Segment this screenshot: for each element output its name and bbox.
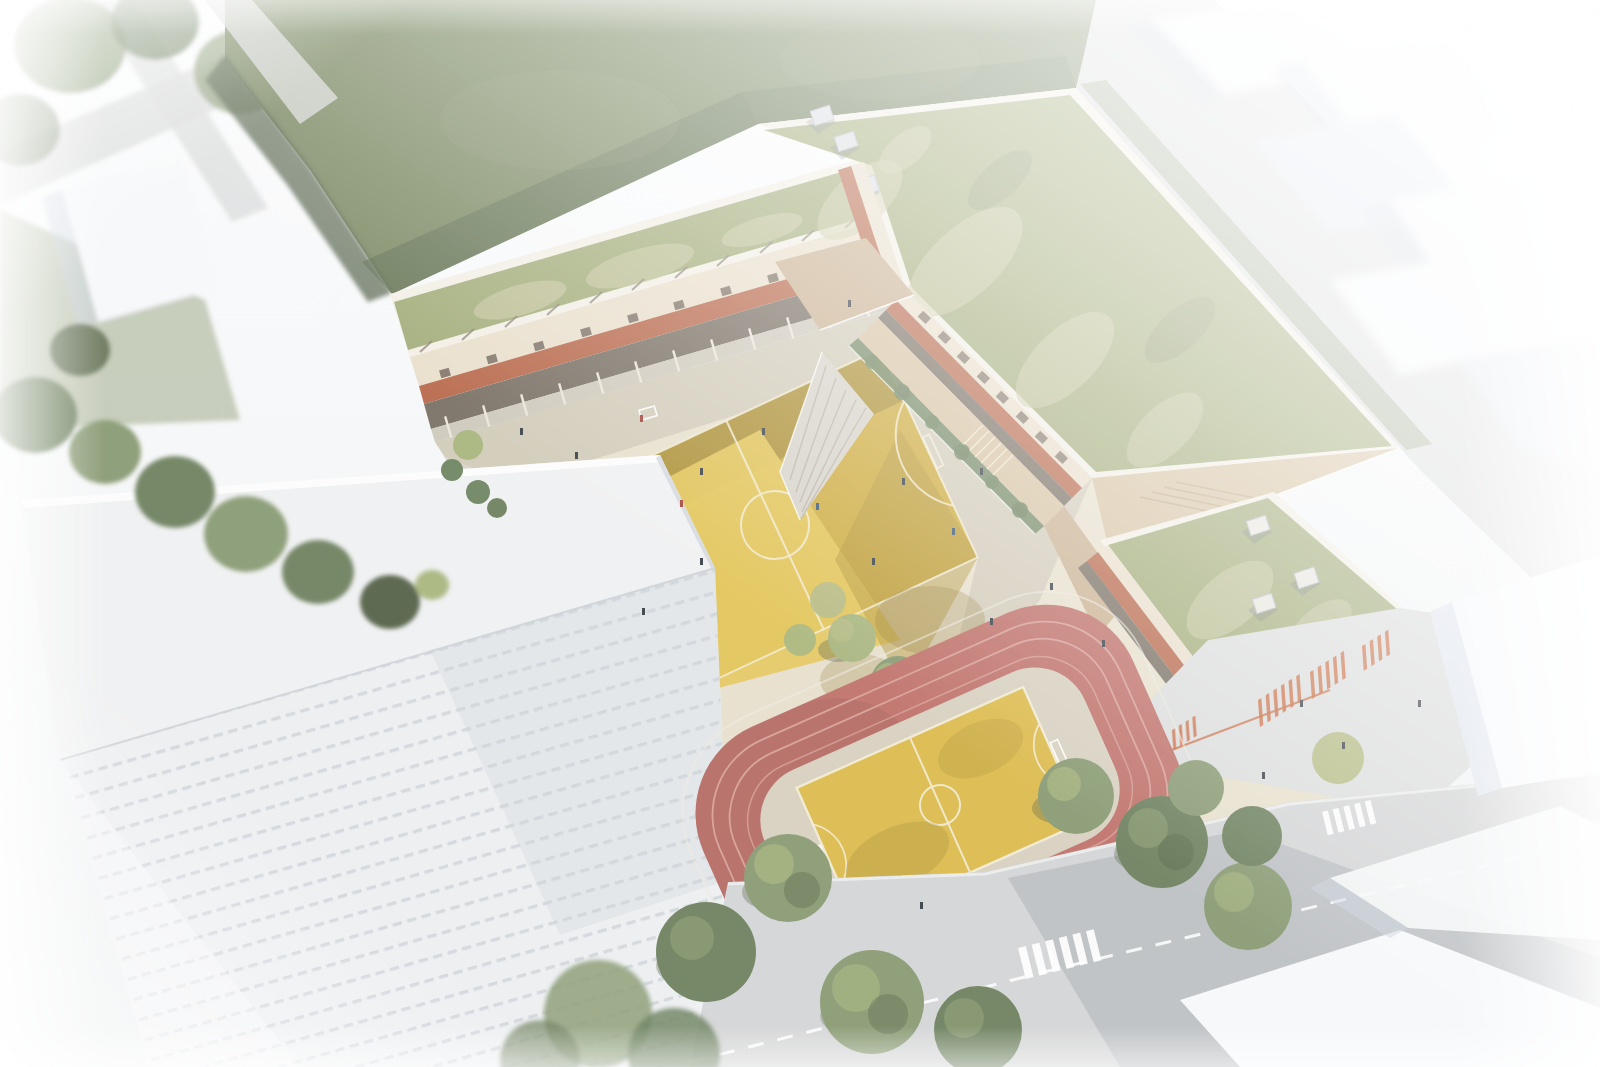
vignette-overlays	[0, 0, 1600, 1067]
architectural-rendering	[0, 0, 1600, 1067]
aerial-render-canvas	[0, 0, 1600, 1067]
